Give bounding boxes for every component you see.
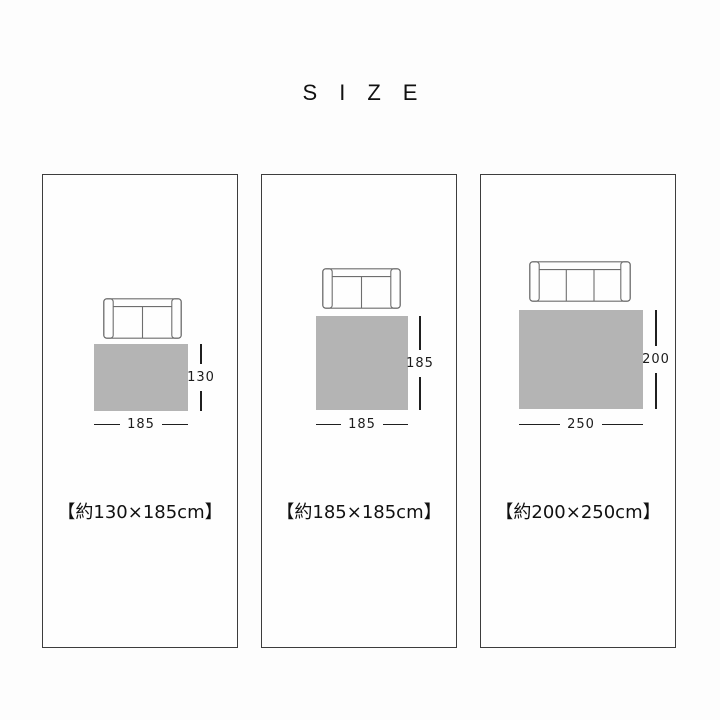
width-dimension-label: 185 — [348, 417, 376, 432]
dimension-line — [419, 316, 421, 350]
dimension-line — [162, 424, 188, 426]
size-panel-130x185: 130 185 【約130×185cm】 — [42, 174, 238, 648]
dimension-line — [602, 424, 643, 426]
size-panel-200x250: 200 250 【約200×250cm】 — [480, 174, 676, 648]
depth-dimension-label: 200 — [642, 352, 670, 367]
size-caption: 【約130×185cm】 — [43, 498, 237, 524]
dimension-line — [655, 373, 657, 409]
dimension-line — [316, 424, 341, 426]
depth-dimension: 200 — [643, 310, 669, 409]
depth-dimension: 185 — [407, 316, 433, 410]
depth-dimension-label: 130 — [187, 370, 215, 385]
width-dimension: 185 — [316, 417, 408, 432]
size-infographic: SIZE 130 185 【約130×185cm】 — [0, 0, 720, 720]
dimension-line — [519, 424, 560, 426]
two-seat-sofa-icon — [322, 268, 401, 309]
depth-dimension-label: 185 — [406, 356, 434, 371]
width-dimension-label: 250 — [567, 417, 595, 432]
size-panel-185x185: 185 185 【約185×185cm】 — [261, 174, 457, 648]
width-dimension-label: 185 — [127, 417, 155, 432]
dimension-line — [655, 310, 657, 346]
rug-rectangle — [519, 310, 643, 409]
two-seat-sofa-icon — [103, 298, 182, 339]
dimension-line — [200, 344, 202, 364]
width-dimension: 185 — [94, 417, 188, 432]
rug-rectangle — [316, 316, 408, 410]
size-caption: 【約185×185cm】 — [262, 498, 456, 524]
page-title: SIZE — [0, 80, 720, 106]
dimension-line — [200, 391, 202, 411]
dimension-line — [383, 424, 408, 426]
dimension-line — [94, 424, 120, 426]
dimension-line — [419, 377, 421, 411]
depth-dimension: 130 — [188, 344, 214, 411]
three-seat-sofa-icon — [529, 261, 631, 302]
width-dimension: 250 — [519, 417, 643, 432]
size-caption: 【約200×250cm】 — [481, 498, 675, 524]
rug-rectangle — [94, 344, 188, 411]
